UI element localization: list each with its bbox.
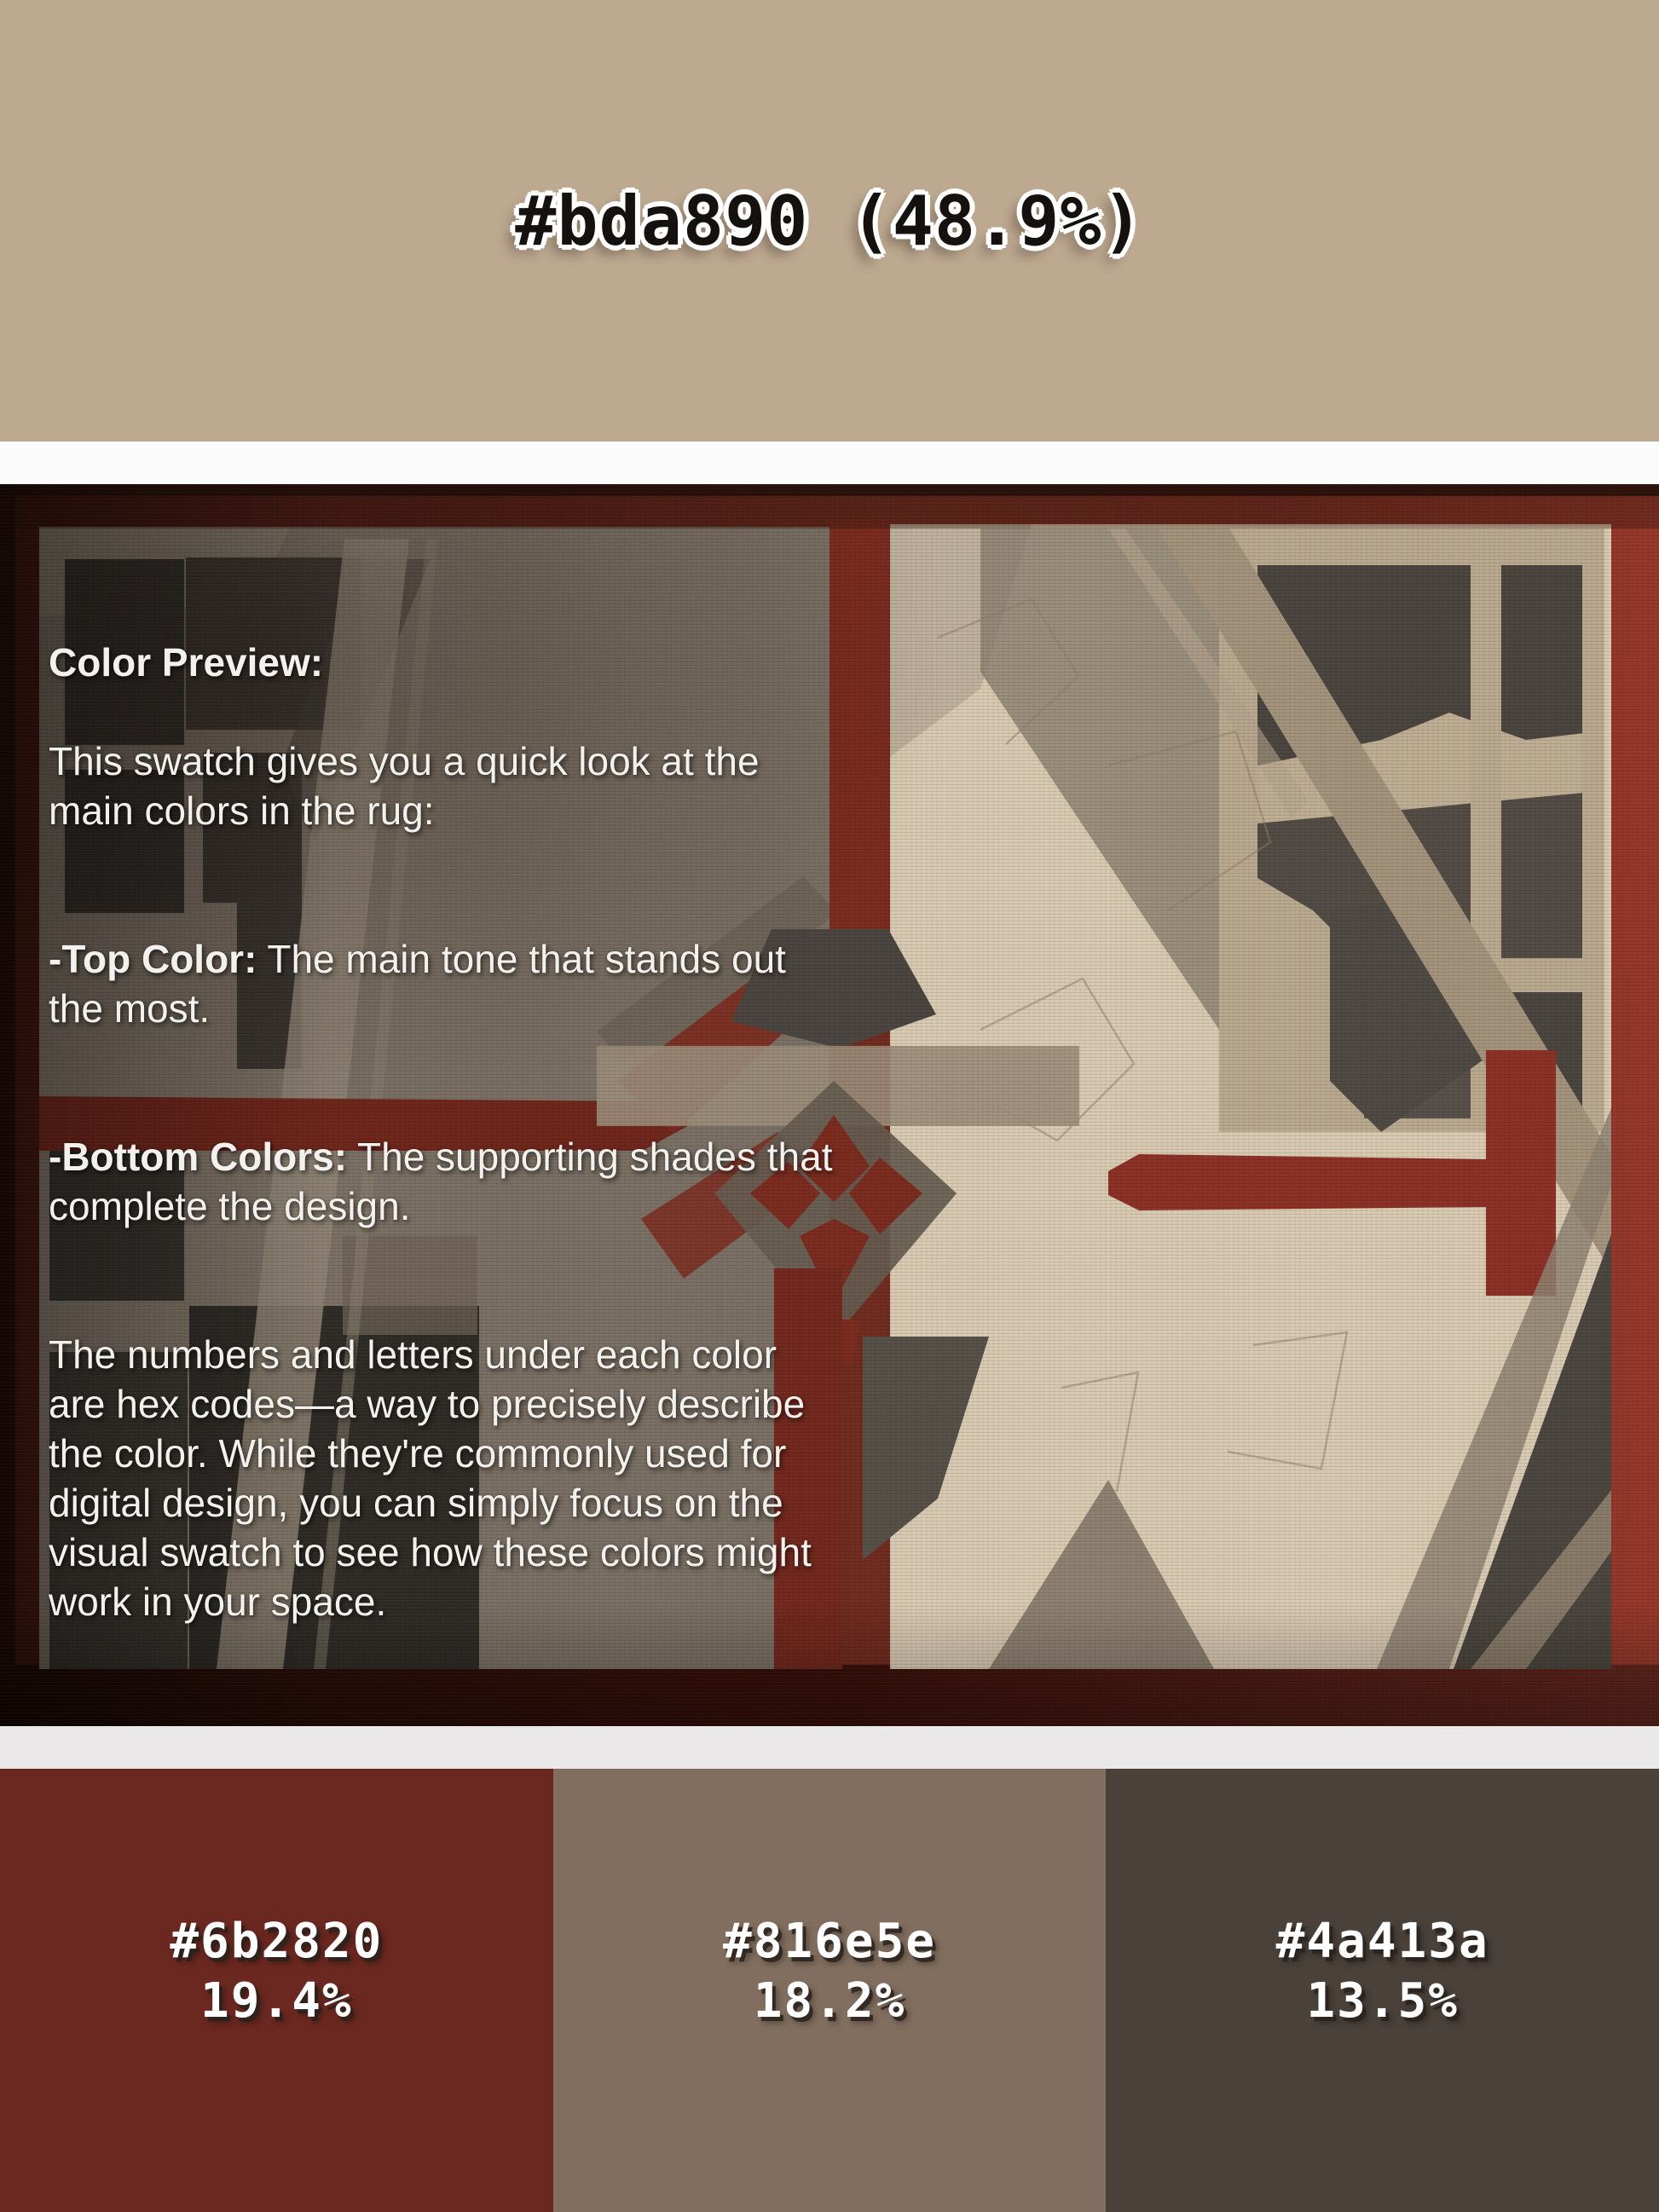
swatch-hex-label: #4a413a (1276, 1912, 1489, 1972)
bottom-swatch-2: #816e5e 18.2% (553, 1769, 1107, 2212)
divider-strip-bottom (0, 1726, 1659, 1769)
rug-photo: Color Preview: This swatch gives you a q… (0, 484, 1659, 1726)
page: #bda890 (48.9%) (0, 0, 1659, 2212)
top-color-swatch: #bda890 (48.9%) (0, 0, 1659, 442)
bottom-colors-label: -Bottom Colors: (49, 1135, 347, 1179)
bottom-swatch-row: #6b2820 19.4% #816e5e 18.2% #4a413a 13.5… (0, 1769, 1659, 2212)
swatch-hex-label: #816e5e (723, 1912, 936, 1972)
overlay-intro: This swatch gives you a quick look at th… (49, 736, 1165, 835)
color-preview-overlay: Color Preview: This swatch gives you a q… (49, 588, 1165, 1726)
bottom-swatch-3: #4a413a 13.5% (1106, 1769, 1659, 2212)
overlay-top-color: -Top Color: The main tone that stands ou… (49, 934, 1165, 1033)
overlay-bottom-colors: -Bottom Colors: The supporting shades th… (49, 1132, 1165, 1231)
swatch-percent-label: 13.5% (1306, 1972, 1459, 2031)
overlay-heading: Color Preview: (49, 638, 1165, 687)
bottom-swatch-1: #6b2820 19.4% (0, 1769, 553, 2212)
divider-strip-top (0, 442, 1659, 484)
top-color-label: -Top Color: (49, 937, 257, 981)
swatch-percent-label: 18.2% (754, 1972, 906, 2031)
swatch-hex-label: #6b2820 (170, 1912, 383, 1972)
overlay-disclaimer: Colors may look slightly different on fa… (49, 1725, 1165, 1726)
swatch-percent-label: 19.4% (200, 1972, 353, 2031)
page-title: #bda890 (48.9%) (515, 182, 1143, 261)
overlay-hex-explainer: The numbers and letters under each color… (49, 1330, 1165, 1626)
